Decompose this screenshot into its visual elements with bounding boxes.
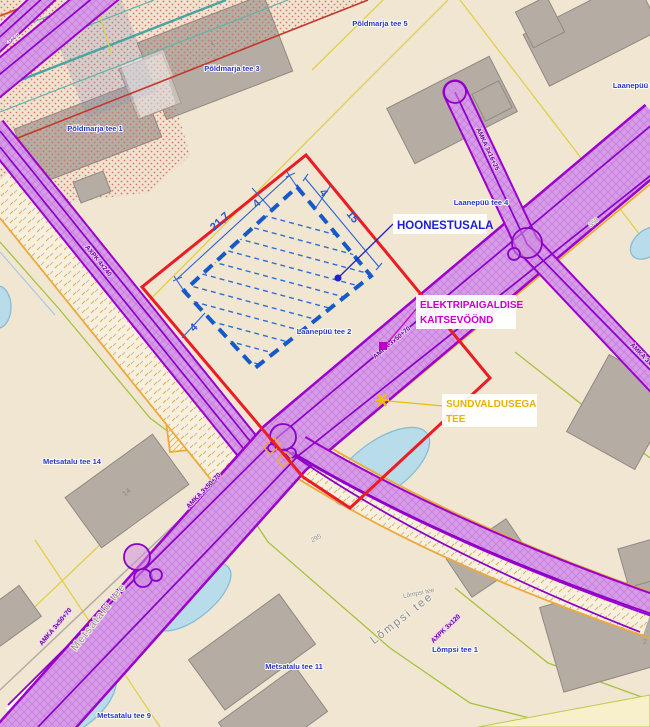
callout-kaitsevoond-line2: KAITSEVÖÖND	[420, 313, 493, 326]
hoonestusala-point	[335, 275, 342, 282]
map-canvas[interactable]: 21,7 15 4 4 4 Metsatalu tee Lõmpsi tee L…	[0, 0, 650, 727]
address-label: Laanepüü tee 2	[297, 327, 352, 336]
address-label: Metsatalu tee 14	[43, 457, 102, 466]
address-label: Põldmarja tee 1	[67, 124, 122, 133]
address-label: Põldmarja tee 3	[204, 64, 259, 73]
address-label: Põldmarja tee 5	[352, 19, 407, 28]
address-label: Metsatalu tee 9	[97, 711, 151, 720]
kaitsevoond-marker	[379, 342, 387, 350]
callout-sundvaldus-line2: TEE	[446, 414, 466, 425]
callout-sundvaldus-line1: SUNDVALDUSEGA	[446, 399, 536, 410]
callout-hoonestusala: HOONESTUSALA	[397, 220, 493, 232]
address-label: Lõmpsi tee 1	[432, 645, 478, 654]
address-label: Laanepüü tee	[613, 81, 650, 90]
building-number-2: 2	[643, 637, 647, 646]
callout-kaitsevoond-line1: ELEKTRIPAIGALDISE	[420, 300, 523, 311]
address-label: Laanepüü tee 4	[454, 198, 509, 207]
address-label: Metsatalu tee 11	[265, 662, 323, 671]
